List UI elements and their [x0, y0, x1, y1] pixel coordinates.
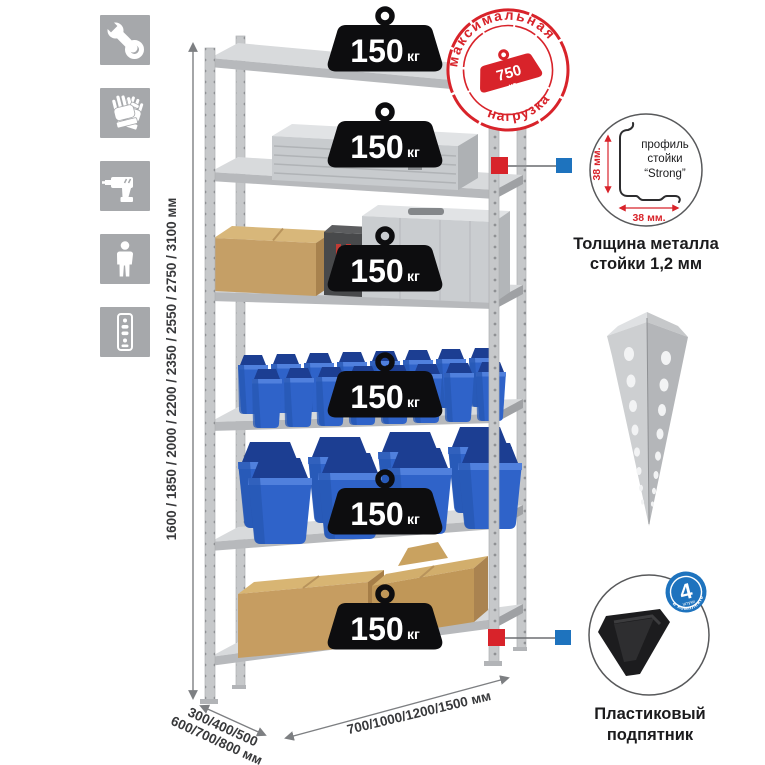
- load-value: 150: [350, 253, 403, 289]
- foot-caption-2: подпятник: [607, 726, 694, 744]
- load-value: 150: [350, 129, 403, 165]
- load-unit: кг: [407, 144, 420, 160]
- load-value: 150: [350, 496, 403, 532]
- product-infographic: 1600 / 1850 / 2000 / 2200 / 2350 / 2550 …: [0, 0, 765, 765]
- height-dimension: 1600 / 1850 / 2000 / 2200 / 2350 / 2550 …: [164, 44, 193, 698]
- load-unit: кг: [407, 268, 420, 284]
- load-unit: кг: [407, 511, 420, 527]
- depth-dimension: 300/400/500 600/700/800 мм: [169, 700, 271, 765]
- foot-callout-connector: [488, 629, 571, 646]
- profile-caption-2: стойки 1,2 мм: [590, 255, 702, 273]
- load-unit: кг: [407, 48, 420, 64]
- corner-post-photo: [607, 312, 688, 526]
- plastic-foot-detail: 4 штуки в комплекте Пластиковый подпятни…: [589, 567, 711, 744]
- profile-dim-vertical: 38 мм.: [591, 147, 603, 180]
- load-value: 150: [350, 33, 403, 69]
- load-value: 150: [350, 379, 403, 415]
- height-dimension-label: 1600 / 1850 / 2000 / 2200 / 2350 / 2550 …: [164, 198, 179, 541]
- blue-marker-square: [555, 630, 571, 645]
- width-dimension: 700/1000/1200/1500 мм: [286, 678, 508, 738]
- load-value: 150: [350, 611, 403, 647]
- profile-label-1: профиль: [641, 139, 689, 151]
- profile-label-3: “Strong”: [644, 168, 686, 180]
- foot-caption-1: Пластиковый: [594, 705, 705, 723]
- profile-label-2: стойки: [647, 153, 682, 165]
- profile-dim-horizontal: 38 мм.: [632, 212, 665, 224]
- blue-marker-square: [556, 158, 572, 173]
- main-graphic: 1600 / 1850 / 2000 / 2200 / 2350 / 2550 …: [0, 0, 765, 765]
- max-load-stamp: максимальная нагрузка 750 кг: [433, 0, 582, 144]
- load-badge-2: 150 кг: [328, 105, 443, 168]
- red-marker-square: [491, 157, 508, 174]
- profile-caption-1: Толщина металла: [573, 235, 719, 253]
- cardboard-box: [214, 226, 334, 296]
- width-dimension-label: 700/1000/1200/1500 мм: [345, 688, 492, 737]
- profile-callout-connector: [491, 157, 572, 174]
- load-unit: кг: [407, 394, 420, 410]
- load-badge-1: 150 кг: [328, 9, 443, 72]
- red-marker-square: [488, 629, 505, 646]
- profile-detail: 38 мм. 38 мм. профиль стойки “Strong” То…: [573, 114, 719, 273]
- load-unit: кг: [407, 626, 420, 642]
